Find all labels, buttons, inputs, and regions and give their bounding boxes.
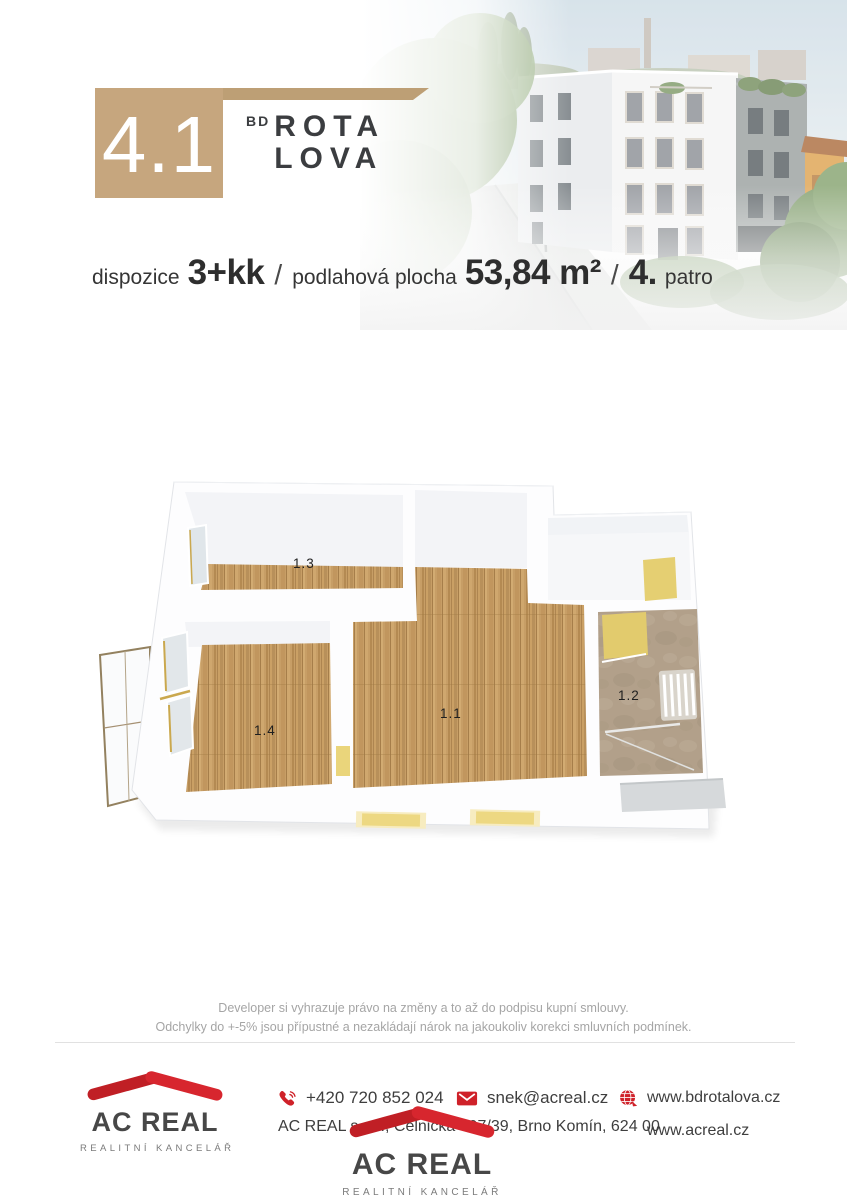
project-logo-line1: ROTA	[274, 111, 385, 143]
agency-website-row[interactable]: www.acreal.cz	[647, 1122, 780, 1140]
agency-name: AC REAL	[80, 1109, 230, 1136]
room-label-1-4: 1.4	[254, 723, 276, 738]
disclaimer: Developer si vyhrazuje právo na změny a …	[0, 999, 847, 1038]
plocha-value: 53,84 m²	[465, 253, 601, 293]
acreal-logo-center: AC REAL REALITNÍ KANCELÁŘ	[340, 1104, 504, 1198]
acreal-logo-left: AC REAL REALITNÍ KANCELÁŘ	[80, 1068, 230, 1154]
patro-value: 4.	[629, 253, 657, 293]
project-logo-prefix: BD	[246, 113, 270, 174]
brochure-page: 4.1 BD ROTA LOVA dispozice 3+kk / podlah…	[0, 0, 847, 1200]
disclaimer-line1: Developer si vyhrazuje právo na změny a …	[0, 999, 847, 1018]
phone-icon	[278, 1089, 297, 1108]
plocha-label: podlahová plocha	[292, 266, 457, 290]
roof-icon	[85, 1068, 225, 1102]
room-label-1-1: 1.1	[440, 706, 462, 721]
email-address[interactable]: snek@acreal.cz	[487, 1088, 608, 1108]
project-logo: BD ROTA LOVA	[246, 111, 385, 174]
project-logo-line2: LOVA	[274, 143, 385, 175]
footer-divider	[55, 1042, 795, 1043]
specs-separator: /	[274, 259, 282, 291]
agency-tagline: REALITNÍ KANCELÁŘ	[80, 1143, 230, 1154]
apartment-specs: dispozice 3+kk / podlahová plocha 53,84 …	[92, 253, 807, 293]
project-website-row[interactable]: www.bdrotalova.cz	[618, 1088, 780, 1108]
unit-badge: 4.1	[95, 88, 223, 198]
agency-tagline: REALITNÍ KANCELÁŘ	[340, 1187, 504, 1198]
project-website[interactable]: www.bdrotalova.cz	[647, 1089, 780, 1107]
patro-label: patro	[665, 266, 713, 290]
unit-number: 4.1	[102, 101, 216, 185]
dispozice-label: dispozice	[92, 266, 180, 290]
floorplan-rendering	[90, 440, 750, 870]
specs-separator: /	[611, 259, 619, 291]
floorplan: 1.1 1.2 1.3 1.4	[90, 440, 750, 870]
room-label-1-3: 1.3	[293, 556, 315, 571]
agency-name: AC REAL	[340, 1150, 504, 1180]
room-label-1-2: 1.2	[618, 688, 640, 703]
disclaimer-line2: Odchylky do +-5% jsou přípustné a nezakl…	[0, 1018, 847, 1037]
agency-website[interactable]: www.acreal.cz	[647, 1122, 749, 1140]
dispozice-value: 3+kk	[188, 253, 265, 293]
roof-icon	[346, 1104, 498, 1138]
globe-icon	[618, 1088, 638, 1108]
